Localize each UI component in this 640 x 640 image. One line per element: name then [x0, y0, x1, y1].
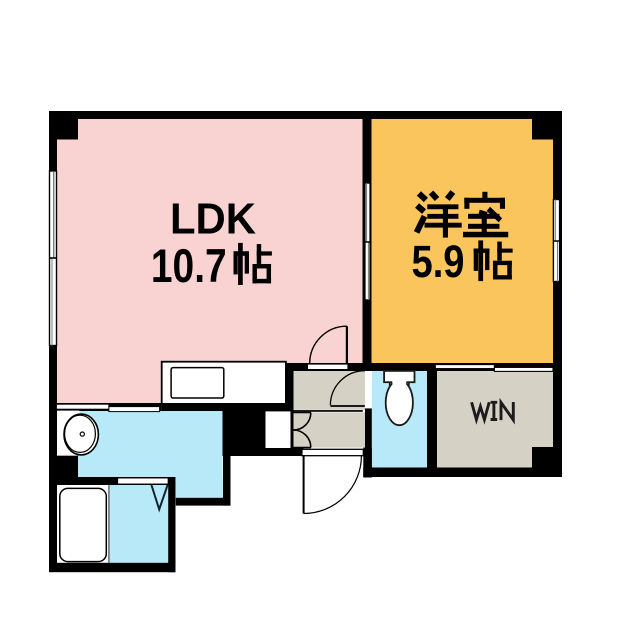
- svg-text:10.7: 10.7: [151, 239, 227, 292]
- svg-text:LDK: LDK: [170, 194, 256, 243]
- svg-text:5.9: 5.9: [412, 236, 465, 287]
